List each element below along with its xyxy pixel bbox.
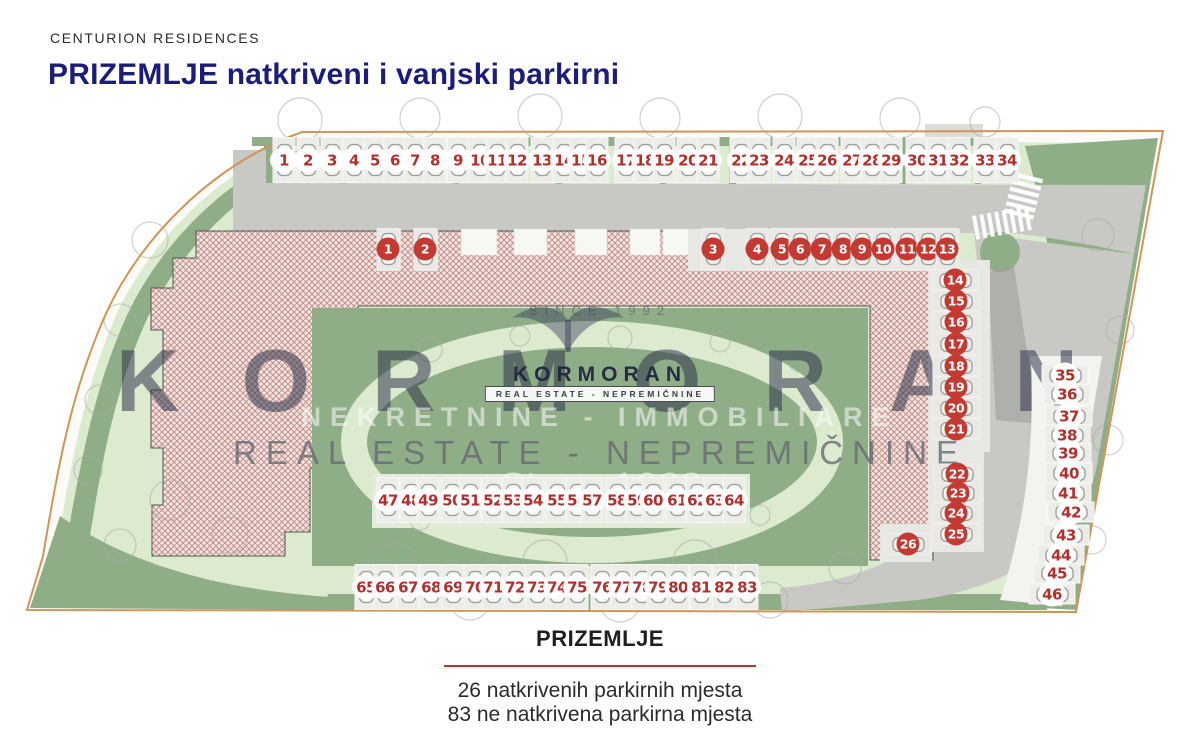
page: CENTURION RESIDENCES PRIZEMLJE natkriven… (0, 0, 1200, 753)
building-entrances (461, 229, 701, 255)
caption-covered-count: 26 natkrivenih parkirnih mjesta (0, 679, 1200, 703)
caption-divider (444, 665, 756, 667)
caption-outdoor-count: 83 ne natkrivena parkirna mjesta (0, 703, 1200, 727)
caption-title: PRIZEMLJE (0, 626, 1200, 652)
plan-caption: PRIZEMLJE 26 natkrivenih parkirnih mjest… (0, 626, 1200, 726)
courtyard (312, 308, 868, 566)
